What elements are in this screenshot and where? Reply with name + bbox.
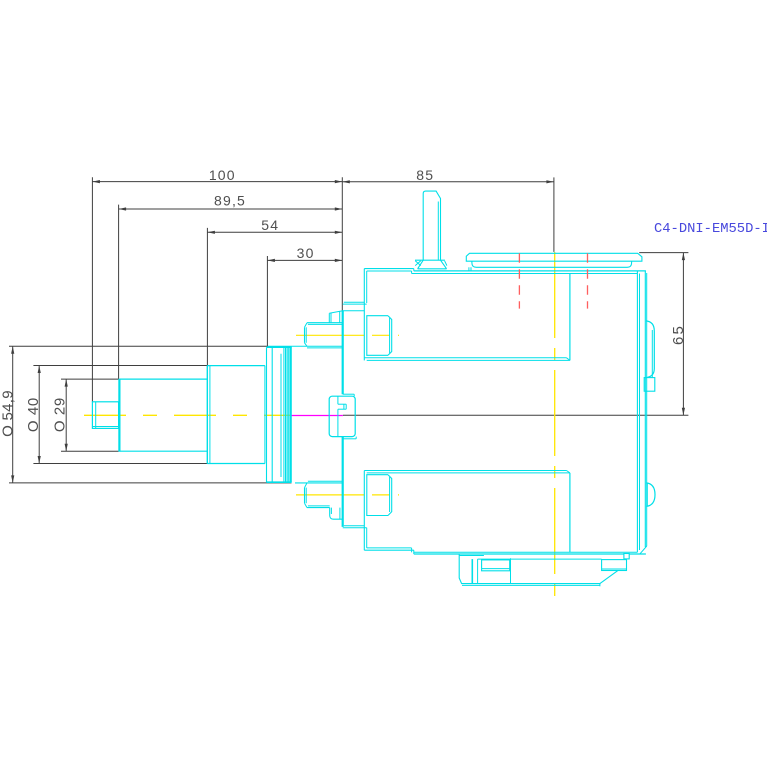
svg-text:30: 30	[297, 245, 315, 261]
svg-text:85: 85	[416, 167, 434, 183]
svg-text:O 40: O 40	[25, 397, 42, 432]
svg-text:C4-DNI-EM55D-I: C4-DNI-EM55D-I	[654, 222, 767, 237]
svg-text:100: 100	[209, 167, 236, 183]
svg-text:54: 54	[261, 217, 279, 233]
svg-text:65: 65	[670, 324, 687, 345]
svg-text:O 29: O 29	[51, 397, 68, 432]
svg-text:O 54,9: O 54,9	[0, 390, 17, 437]
svg-text:89,5: 89,5	[214, 192, 246, 208]
